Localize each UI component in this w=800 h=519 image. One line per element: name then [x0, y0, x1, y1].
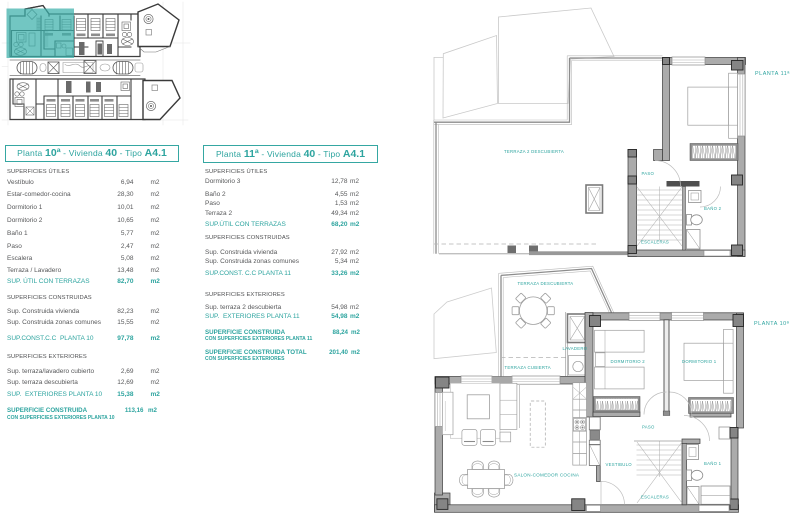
svg-text:PLANTA 11ª: PLANTA 11ª — [755, 71, 790, 77]
svg-text:DORMITORIO 2: DORMITORIO 2 — [611, 359, 646, 364]
svg-text:ESCALERAS: ESCALERAS — [641, 495, 669, 500]
svg-text:BAÑO 2: BAÑO 2 — [704, 206, 722, 211]
svg-text:TERRAZA 2 DESCUBIERTA: TERRAZA 2 DESCUBIERTA — [504, 149, 564, 154]
svg-text:TERRAZA CUBIERTA: TERRAZA CUBIERTA — [505, 365, 551, 370]
svg-text:SALON-COMEDOR COCINA: SALON-COMEDOR COCINA — [514, 473, 580, 478]
svg-text:DORMITORIO 1: DORMITORIO 1 — [682, 359, 717, 364]
svg-text:PASO: PASO — [642, 171, 655, 176]
svg-text:BAÑO 1: BAÑO 1 — [704, 461, 722, 466]
svg-text:PASO: PASO — [642, 425, 655, 430]
svg-text:LAVADERO: LAVADERO — [563, 346, 588, 351]
svg-text:TERRAZA DESCUBIERTA: TERRAZA DESCUBIERTA — [518, 281, 574, 286]
svg-text:PLANTA 10ª: PLANTA 10ª — [754, 321, 790, 327]
svg-text:VESTIBULO: VESTIBULO — [606, 462, 633, 467]
svg-text:ESCALERAS: ESCALERAS — [641, 240, 669, 245]
